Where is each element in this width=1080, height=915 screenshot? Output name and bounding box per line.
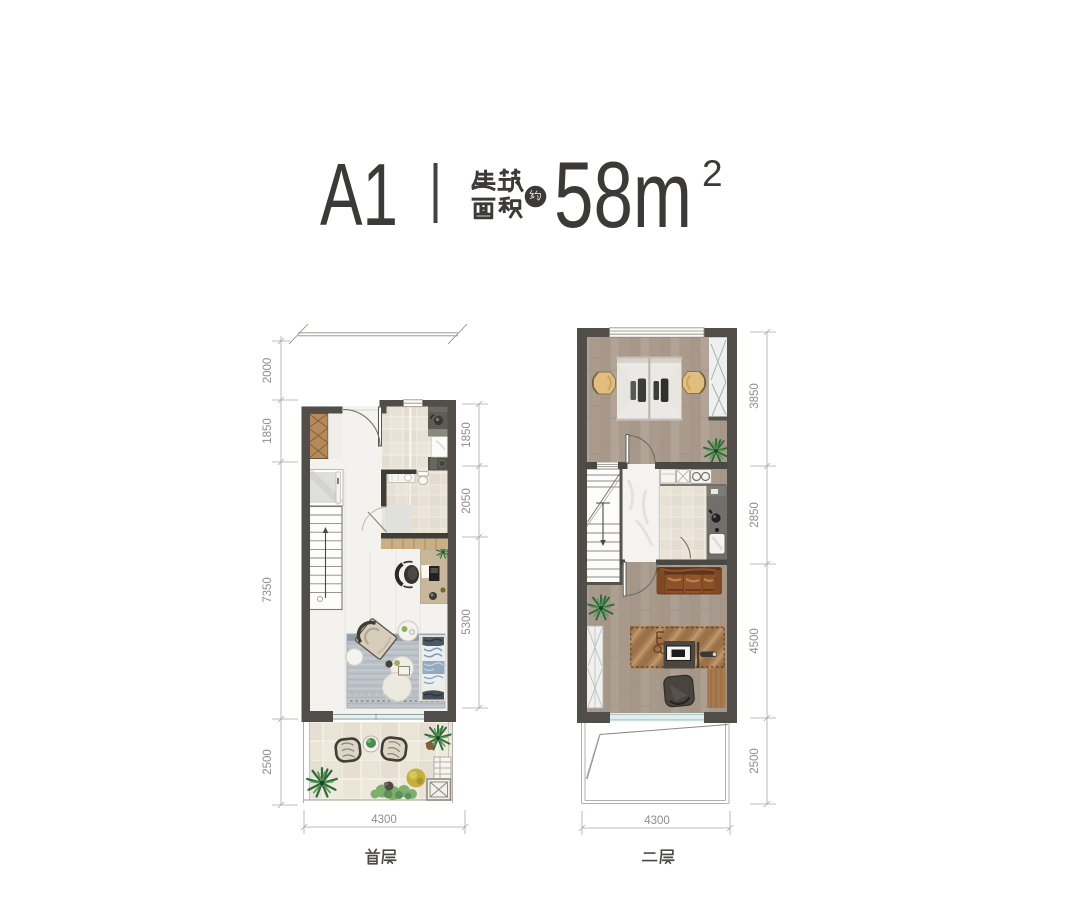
svg-text:1850: 1850: [262, 418, 274, 444]
svg-text:4500: 4500: [749, 628, 761, 654]
svg-text:2500: 2500: [749, 748, 761, 774]
svg-text:4300: 4300: [644, 815, 670, 827]
svg-text:5300: 5300: [461, 609, 473, 635]
svg-text:1850: 1850: [461, 422, 473, 448]
svg-text:58m: 58m: [554, 142, 692, 247]
svg-text:2050: 2050: [461, 488, 473, 514]
svg-text:3850: 3850: [749, 383, 761, 409]
svg-text:2000: 2000: [262, 358, 274, 384]
svg-text:2500: 2500: [262, 749, 274, 775]
svg-text:2: 2: [702, 153, 723, 194]
svg-text:4300: 4300: [371, 814, 397, 826]
svg-text:A1: A1: [320, 145, 398, 244]
svg-text:7350: 7350: [262, 577, 274, 603]
svg-text:2850: 2850: [749, 502, 761, 528]
